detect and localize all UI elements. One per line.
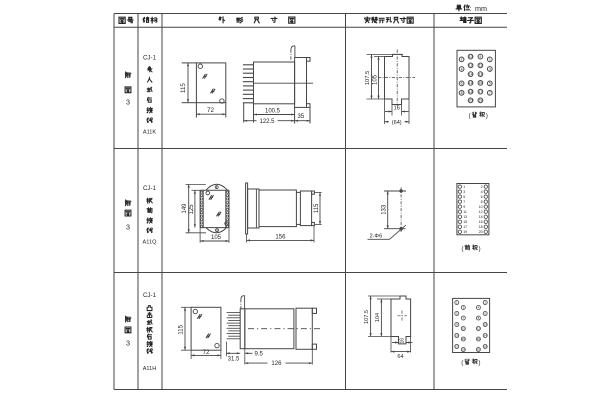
svg-text:115: 115 — [178, 324, 184, 334]
svg-text:1: 1 — [489, 58, 491, 62]
svg-text:A11Q: A11Q — [143, 239, 158, 245]
svg-text:11: 11 — [462, 327, 465, 331]
svg-text:122.5: 122.5 — [259, 119, 275, 125]
svg-text:104: 104 — [375, 313, 381, 322]
svg-text:19: 19 — [478, 99, 482, 103]
svg-text:18: 18 — [469, 90, 473, 94]
svg-text:9: 9 — [479, 55, 481, 59]
svg-text:16: 16 — [469, 81, 473, 85]
svg-text:14: 14 — [479, 215, 483, 219]
svg-text:11: 11 — [479, 64, 483, 68]
svg-text:115: 115 — [314, 203, 320, 213]
svg-text:8: 8 — [481, 200, 483, 204]
svg-text:156: 156 — [275, 234, 286, 240]
svg-text:20: 20 — [479, 230, 483, 234]
svg-text:5: 5 — [463, 195, 465, 199]
svg-text:A11H: A11H — [143, 366, 157, 372]
svg-text:CJ-1: CJ-1 — [143, 55, 157, 62]
svg-text:15: 15 — [462, 337, 466, 341]
svg-text:): ) — [479, 245, 481, 252]
svg-text:3: 3 — [463, 190, 465, 194]
svg-text:7: 7 — [489, 91, 491, 95]
svg-text:8: 8 — [461, 91, 463, 95]
svg-text:107.5: 107.5 — [364, 310, 370, 324]
svg-text:17: 17 — [463, 225, 467, 229]
svg-text:12: 12 — [477, 327, 481, 331]
svg-text:13: 13 — [455, 334, 459, 338]
svg-text:9.5: 9.5 — [255, 351, 264, 357]
svg-text:14: 14 — [469, 72, 473, 76]
svg-text:3: 3 — [126, 223, 130, 232]
svg-text:133: 133 — [381, 204, 387, 215]
svg-text:105: 105 — [211, 235, 222, 241]
svg-text:35: 35 — [297, 113, 304, 120]
svg-text:105: 105 — [373, 74, 379, 85]
svg-text:5: 5 — [489, 82, 491, 86]
svg-text:6: 6 — [481, 195, 483, 199]
svg-text:19: 19 — [463, 230, 467, 234]
svg-text:18: 18 — [479, 225, 483, 229]
svg-text:15: 15 — [478, 81, 482, 85]
svg-text:3: 3 — [489, 67, 491, 71]
svg-text:149: 149 — [182, 203, 188, 214]
svg-text:20: 20 — [477, 348, 481, 352]
svg-text:18: 18 — [484, 345, 488, 349]
svg-text:3: 3 — [126, 98, 130, 107]
svg-text:15: 15 — [463, 220, 467, 224]
svg-text:16: 16 — [477, 337, 481, 341]
svg-text:9: 9 — [463, 205, 465, 209]
svg-text:14: 14 — [484, 334, 488, 338]
svg-text:): ) — [478, 359, 480, 366]
svg-text:19: 19 — [462, 348, 466, 352]
svg-text:4: 4 — [461, 67, 463, 71]
svg-text:CJ-1: CJ-1 — [143, 185, 157, 192]
svg-text:17: 17 — [455, 345, 459, 349]
svg-text:16: 16 — [479, 220, 483, 224]
svg-text:6: 6 — [461, 82, 463, 86]
svg-text:13: 13 — [478, 72, 482, 76]
svg-text:A11K: A11K — [143, 130, 157, 136]
svg-text:CJ-1: CJ-1 — [143, 292, 157, 299]
svg-text:10: 10 — [469, 55, 473, 59]
svg-text:13: 13 — [463, 215, 467, 219]
svg-text:20: 20 — [469, 99, 473, 103]
svg-text:4: 4 — [481, 190, 483, 194]
svg-text:126: 126 — [271, 361, 282, 367]
svg-text:(64): (64) — [392, 120, 402, 126]
svg-text:12: 12 — [469, 64, 473, 68]
svg-text:2: 2 — [481, 185, 483, 189]
svg-text:2: 2 — [461, 58, 463, 62]
svg-text:107.5: 107.5 — [365, 71, 371, 85]
svg-text:12: 12 — [479, 210, 483, 214]
svg-text:3: 3 — [126, 339, 130, 348]
svg-text:16: 16 — [400, 338, 406, 344]
svg-text:10: 10 — [479, 205, 483, 209]
svg-text:mm: mm — [475, 4, 487, 13]
svg-text:17: 17 — [478, 90, 482, 94]
svg-text:125: 125 — [189, 204, 195, 215]
svg-text:64: 64 — [397, 354, 403, 360]
svg-text:100.5: 100.5 — [265, 108, 281, 114]
svg-text:): ) — [486, 112, 488, 119]
svg-text::: : — [470, 6, 472, 13]
svg-text:16: 16 — [394, 106, 400, 112]
svg-text:115: 115 — [180, 83, 187, 93]
svg-text:7: 7 — [463, 200, 465, 204]
svg-text:11: 11 — [463, 210, 467, 214]
svg-text:72: 72 — [207, 107, 214, 114]
svg-text:2-Φ6: 2-Φ6 — [370, 234, 383, 240]
svg-text:31.5: 31.5 — [228, 356, 240, 362]
svg-text:72: 72 — [203, 350, 210, 356]
svg-text:1: 1 — [463, 185, 465, 189]
svg-text:10: 10 — [484, 323, 488, 327]
